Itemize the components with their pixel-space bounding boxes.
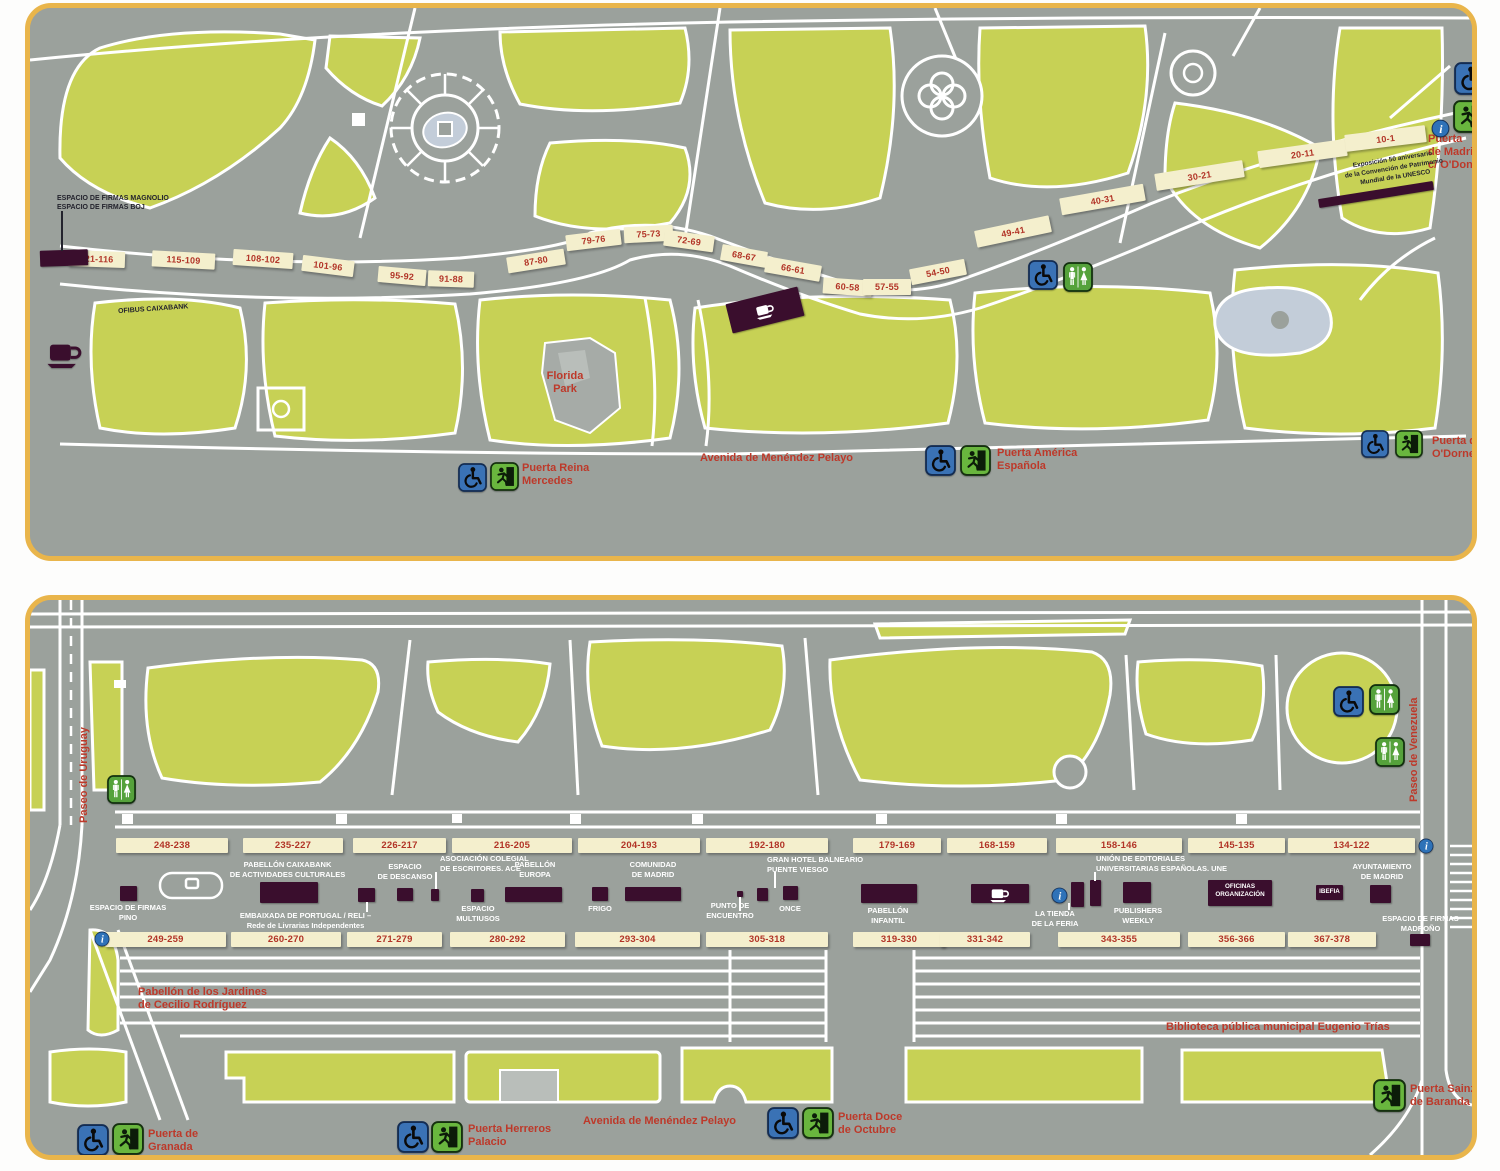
label: ESPACIO DE FIRMAS MAGNOLIO ESPACIO DE FI…	[57, 194, 227, 213]
label: Puerta América Española	[997, 447, 1117, 473]
label: AYUNTAMIENTO DE MADRID	[1332, 862, 1432, 882]
stall-226-217: 226-217	[353, 838, 446, 853]
connector-line	[739, 897, 741, 911]
wheelchair-icon	[1361, 430, 1389, 458]
stand-oficinas-organizacion: OFICINAS ORGANIZACIÓN	[1208, 880, 1272, 906]
label: ESPACIO DE FIRMAS MADROÑO	[1368, 914, 1473, 934]
wc-icon	[1375, 737, 1405, 767]
stall-248-238: 248-238	[116, 838, 228, 853]
overlay: 248-238235-227226-217216-205204-193192-1…	[30, 600, 1472, 1155]
stand-espacio-multiusos	[471, 889, 484, 902]
stall-115-109: 115-109	[152, 250, 216, 269]
stall-40-31: 40-31	[1059, 184, 1146, 216]
label: Florida Park	[520, 370, 610, 396]
stand-tienda-caseta-a	[1071, 882, 1084, 907]
label: FRIGO	[565, 904, 635, 914]
stand-cafeteria-bus	[725, 286, 804, 333]
stand-ibefia: IBEFIA	[1316, 885, 1343, 900]
stall-57-55: 57-55	[863, 279, 911, 295]
label: Exposición 50 aniversario de la Convenci…	[1329, 146, 1460, 192]
stall-134-122: 134-122	[1288, 838, 1415, 853]
label: Puerta de Granada	[148, 1128, 238, 1154]
stall-235-227: 235-227	[243, 838, 343, 853]
label: OFIBUS CAIXABANK	[118, 299, 238, 317]
stall-108-102: 108-102	[233, 249, 294, 269]
stall-91-88: 91-88	[428, 270, 475, 288]
label: GRAN HOTEL BALNEARIO PUENTE VIESGO	[767, 855, 902, 875]
stall-343-355: 343-355	[1058, 932, 1180, 947]
stall-216-205: 216-205	[452, 838, 572, 853]
info-icon	[1431, 119, 1450, 138]
label: Puerta Doce de Octubre	[838, 1111, 938, 1137]
label: EMBAIXADA DE PORTUGAL / RELI – Rede de L…	[213, 911, 398, 931]
stand-pabellon-europa	[505, 887, 562, 902]
stall-68-67: 68-67	[720, 244, 768, 268]
stall-367-378: 367-378	[1288, 932, 1376, 947]
stand-pabellon-infantil	[861, 884, 917, 903]
stall-260-270: 260-270	[231, 932, 341, 947]
wheelchair-icon	[77, 1124, 109, 1156]
exit-icon	[1395, 430, 1423, 458]
label: Puerta Herreros Palacio	[468, 1123, 583, 1149]
coffee-icon	[749, 296, 781, 324]
connector-line	[1094, 872, 1096, 881]
stall-158-146: 158-146	[1056, 838, 1182, 853]
label: Paseo de Uruguay	[78, 718, 91, 823]
stand-gran-hotel-balneario	[757, 888, 768, 901]
stand-espacio-firmas-madrono	[1410, 934, 1430, 946]
stall-168-159: 168-159	[947, 838, 1047, 853]
connector-line	[774, 872, 776, 888]
wc-icon	[1063, 262, 1093, 292]
stall-101-96: 101-96	[301, 255, 355, 277]
label: Paseo de Venezuela	[1408, 682, 1421, 802]
connector-line	[366, 902, 368, 912]
coffee-icon	[45, 333, 85, 373]
stall-145-135: 145-135	[1188, 838, 1285, 853]
label: Puerta Reina Mercedes	[522, 462, 632, 488]
stall-54-50: 54-50	[909, 259, 967, 285]
wheelchair-icon	[1454, 62, 1477, 95]
stand-frigo	[592, 887, 608, 901]
label: Puerta de O'Dornell	[1432, 435, 1477, 461]
label: Avenida de Menéndez Pelayo	[700, 452, 900, 465]
wc-icon	[107, 775, 136, 804]
stand-ayuntamiento-de-madrid	[1370, 885, 1391, 903]
label: Avenida de Menéndez Pelayo	[583, 1115, 783, 1128]
info-icon	[94, 931, 110, 947]
panel-bottom: 248-238235-227226-217216-205204-193192-1…	[25, 595, 1477, 1160]
stall-319-330: 319-330	[853, 932, 945, 947]
stall-280-292: 280-292	[450, 932, 565, 947]
exit-icon	[960, 445, 991, 476]
info-icon	[1051, 887, 1068, 904]
stall-95-92: 95-92	[377, 266, 426, 286]
stand-publishers-weekly	[1123, 882, 1151, 903]
stand-once	[783, 886, 798, 900]
label: Pabellón de los Jardines de Cecilio Rodr…	[138, 986, 313, 1012]
stall-79-76: 79-76	[565, 229, 622, 252]
stand-comunidad-de-madrid	[625, 887, 681, 901]
stall-179-169: 179-169	[853, 838, 941, 853]
connector-line	[1068, 903, 1070, 910]
label: PABELLÓN EUROPA	[485, 860, 585, 880]
stall-204-193: 204-193	[578, 838, 700, 853]
panel-top: 121-116115-109108-102101-9695-9291-8887-…	[25, 3, 1477, 561]
stall-356-366: 356-366	[1188, 932, 1285, 947]
label: PUBLISHERS WEEKLY	[1088, 906, 1188, 926]
wheelchair-icon	[1333, 686, 1364, 717]
stall-271-279: 271-279	[347, 932, 442, 947]
label: UNIÓN DE EDITORIALES UNIVERSITARIAS ESPA…	[1096, 854, 1271, 874]
label: PABELLÓN CAIXABANK DE ACTIVIDADES CULTUR…	[205, 860, 370, 880]
connector-line	[61, 211, 63, 251]
wheelchair-icon	[925, 445, 956, 476]
coffee-icon	[986, 883, 1014, 905]
stall-20-11: 20-11	[1257, 139, 1347, 168]
wheelchair-icon	[767, 1107, 799, 1139]
exit-icon	[112, 1123, 144, 1155]
stall-10-1: 10-1	[1344, 125, 1426, 152]
stall-87-80: 87-80	[506, 249, 566, 274]
wc-icon	[1369, 684, 1400, 715]
stall-66-61: 66-61	[764, 256, 822, 281]
label: ONCE	[755, 904, 825, 914]
stand-embaixada-portugal-reli	[358, 888, 375, 902]
stand-espacio-descanso	[397, 888, 413, 901]
label: PABELLÓN INFANTIL	[838, 906, 938, 926]
stand-asociacion-ace	[431, 889, 439, 901]
stand-cafeteria	[971, 884, 1029, 903]
stall-30-21: 30-21	[1154, 160, 1245, 191]
label: COMUNIDAD DE MADRID	[603, 860, 703, 880]
stand-union-editoriales-une	[1090, 880, 1101, 906]
stall-49-41: 49-41	[974, 215, 1052, 247]
stand-espacio-firmas-magnolio-boj	[40, 249, 89, 267]
exit-icon	[802, 1107, 834, 1139]
stall-192-180: 192-180	[706, 838, 828, 853]
wheelchair-icon	[458, 463, 487, 492]
label: ESPACIO MULTIUSOS	[428, 904, 528, 924]
label: Biblioteca pública municipal Eugenio Trí…	[1166, 1021, 1456, 1034]
stand-espacio-firmas-pino	[120, 886, 137, 901]
stall-305-318: 305-318	[706, 932, 828, 947]
info-icon	[1418, 838, 1434, 854]
stall-293-304: 293-304	[575, 932, 700, 947]
wheelchair-icon	[1028, 260, 1058, 290]
wheelchair-icon	[397, 1121, 429, 1153]
label: ESPACIO DE FIRMAS PINO	[78, 903, 178, 923]
label: Puerta Sainz de Baranda	[1410, 1083, 1477, 1109]
overlay: 121-116115-109108-102101-9695-9291-8887-…	[30, 8, 1472, 556]
stand-pabellon-caixabank	[260, 882, 318, 903]
exit-icon	[1373, 1079, 1406, 1112]
exit-icon	[1453, 100, 1477, 133]
exit-icon	[490, 462, 519, 491]
connector-line	[435, 872, 437, 889]
stall-331-342: 331-342	[940, 932, 1030, 947]
stall-249-259: 249-259	[105, 932, 226, 947]
stall-72-69: 72-69	[663, 230, 715, 253]
exit-icon	[431, 1121, 463, 1153]
